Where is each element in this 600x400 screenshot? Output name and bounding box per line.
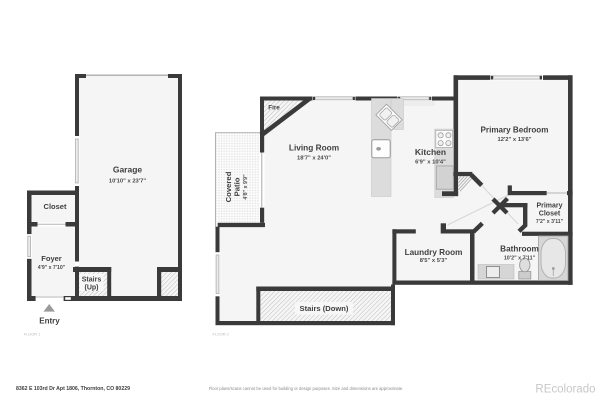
- svg-text:Living Room: Living Room: [289, 143, 339, 153]
- svg-text:4'8" x 9'9": 4'8" x 9'9": [243, 174, 249, 200]
- svg-text:Primary Bedroom: Primary Bedroom: [481, 126, 549, 135]
- svg-text:Primary: Primary: [536, 203, 562, 210]
- svg-text:Closet: Closet: [539, 211, 561, 218]
- svg-text:Stairs (Down): Stairs (Down): [300, 304, 349, 313]
- svg-text:REcolorado: REcolorado: [535, 384, 595, 396]
- svg-text:Foyer: Foyer: [41, 254, 62, 263]
- svg-text:Entry: Entry: [39, 317, 60, 326]
- svg-text:7'2" x 3'11": 7'2" x 3'11": [536, 219, 564, 225]
- svg-text:FLOOR 1: FLOOR 1: [24, 333, 40, 337]
- svg-text:Kitchen: Kitchen: [415, 147, 446, 157]
- svg-text:6'9" x 10'4": 6'9" x 10'4": [415, 160, 446, 166]
- svg-text:Patio: Patio: [232, 177, 241, 196]
- svg-text:4'9" x 7'10": 4'9" x 7'10": [38, 265, 66, 271]
- svg-text:8'5" x 5'3": 8'5" x 5'3": [420, 258, 448, 264]
- svg-text:Stairs: Stairs: [82, 277, 102, 284]
- svg-text:12'2" x 13'6": 12'2" x 13'6": [497, 137, 531, 143]
- svg-text:Garage: Garage: [113, 165, 143, 175]
- svg-text:18'7" x 24'0": 18'7" x 24'0": [297, 156, 331, 162]
- svg-text:Closet: Closet: [44, 202, 67, 211]
- svg-text:Laundry Room: Laundry Room: [405, 248, 463, 257]
- svg-text:(Up): (Up): [85, 285, 99, 292]
- svg-text:Floor plans/scans cannot be us: Floor plans/scans cannot be used for bui…: [209, 386, 404, 391]
- svg-text:FLOOR 2: FLOOR 2: [213, 333, 229, 337]
- svg-text:8362 E 103rd Dr Apt 1806, Thor: 8362 E 103rd Dr Apt 1806, Thornton, CO 8…: [16, 386, 130, 392]
- svg-text:Bathroom: Bathroom: [500, 245, 539, 254]
- svg-text:Fire: Fire: [268, 105, 280, 112]
- svg-text:10'2" x 7'11": 10'2" x 7'11": [504, 256, 536, 262]
- svg-text:10'10" x 23'7": 10'10" x 23'7": [109, 179, 147, 185]
